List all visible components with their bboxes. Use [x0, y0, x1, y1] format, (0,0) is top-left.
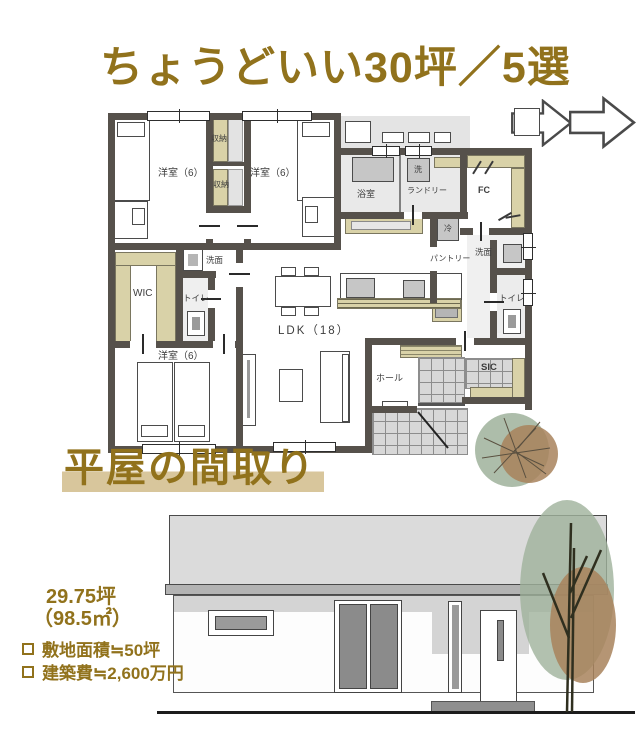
wic-shelf-right [156, 265, 176, 346]
wall [334, 148, 532, 155]
island-wood-panel [337, 298, 461, 309]
entrance-door-slit [497, 620, 504, 661]
window-symbol [405, 146, 432, 156]
washbasin [503, 244, 522, 263]
wall [208, 278, 215, 348]
room-label-pantry: パントリー [430, 255, 470, 263]
flyer-page: ちょうどいい30坪／5選 [0, 0, 637, 748]
room-label-washroom-right: 洗面 [475, 248, 492, 257]
spec-item-label: 敷地面積≒50坪 [42, 636, 160, 661]
wic-shelf-top [115, 252, 176, 266]
wall [108, 113, 115, 453]
wall [206, 162, 251, 166]
roof [169, 515, 607, 586]
page-title: ちょうどいい30坪／5選 [100, 47, 571, 90]
wall [462, 397, 532, 404]
wall [490, 268, 532, 275]
room-label-fridge: 冷 [444, 225, 452, 233]
dining-chair [281, 307, 296, 316]
roof-fascia [165, 584, 608, 595]
room-label-bedroom1: 洋室（6） [158, 169, 204, 179]
door-tick [464, 331, 466, 351]
wall [176, 271, 216, 278]
kitchen-sink [346, 278, 375, 298]
wall [365, 406, 417, 413]
slit-window-glass [452, 605, 459, 689]
spec-item: 敷地面積≒50坪 [22, 636, 160, 661]
wall [108, 243, 341, 250]
wall [430, 212, 437, 247]
toilet-bowl [508, 315, 516, 328]
tree-elevation-icon [505, 498, 637, 714]
coffee-table [279, 369, 303, 402]
dining-chair [281, 267, 296, 276]
checkbox-icon [22, 666, 34, 678]
door-tick [223, 334, 225, 354]
next-arrow-icon [569, 95, 636, 150]
room-label-bedroom3: 洋室（6） [158, 352, 204, 362]
bed-pillow [117, 122, 145, 137]
wall [460, 148, 467, 219]
door-tick [480, 222, 482, 241]
window-mullion [386, 144, 387, 158]
elevation-window [208, 610, 274, 636]
genkan-tiles [418, 357, 465, 403]
plan-caption: 平屋の間取り [62, 446, 324, 490]
spec-item-label: 建築費≒2,600万円 [42, 659, 184, 684]
door-tick [142, 334, 144, 354]
door-tick [199, 225, 220, 227]
dining-chair [304, 307, 319, 316]
water-heater [345, 121, 371, 143]
kitchen-back-counter-top [351, 221, 411, 230]
wall [430, 271, 437, 303]
desk-chair [305, 206, 318, 223]
sliding-door-panel [370, 604, 398, 689]
tree-topview-icon [474, 408, 560, 494]
wall [176, 243, 183, 348]
desk-chair [132, 208, 145, 225]
bathtub [352, 157, 394, 182]
floor-area-sqm: （98.5㎡） [33, 602, 132, 631]
deck-equipment [408, 132, 430, 143]
closet-bottom-floor [228, 169, 243, 206]
wall [365, 338, 372, 453]
deck-equipment [434, 132, 451, 143]
kitchen-stove [403, 280, 425, 298]
room-label-wic: WIC [133, 289, 152, 299]
closet-top-floor [228, 118, 243, 162]
window-symbol [242, 111, 312, 121]
sic-shelf-right [512, 358, 525, 398]
deck-equipment [382, 132, 404, 143]
door-opening [236, 263, 243, 287]
door-tick [412, 205, 414, 225]
slit-window [448, 601, 462, 693]
floor-plan: 洋室（6） 洋室（6） 洋室（6） 収納 収納 浴室 ランドリー 洗 FC 冷 … [108, 113, 532, 455]
room-label-toilet-left: トイレ [183, 294, 209, 303]
sliding-door-panel [339, 604, 367, 689]
porch-step [431, 701, 535, 713]
bath-divider [399, 155, 401, 212]
room-label-ldk: LDK（18） [278, 326, 350, 338]
wall [206, 206, 251, 213]
window-mullion [179, 109, 180, 123]
room-label-bedroom2: 洋室（6） [250, 169, 296, 179]
sliding-door-frame [334, 600, 402, 693]
window-symbol [147, 111, 210, 121]
door-tick [237, 225, 258, 227]
wall [334, 113, 341, 250]
room-label-hall: ホール [376, 374, 403, 383]
tv-screen [247, 360, 250, 418]
spec-item: 建築費≒2,600万円 [22, 659, 184, 684]
laundry-shelf [434, 157, 462, 168]
room-label-sic: SIC [481, 363, 497, 373]
wic-shelf-left [115, 265, 131, 346]
elevation-window-glass [215, 616, 267, 630]
washbasin-bowl [188, 254, 198, 266]
window-mullion [521, 247, 536, 248]
sofa-back [342, 354, 349, 422]
bed-pillow [141, 425, 168, 437]
room-label-closet-bottom: 収納 [213, 181, 229, 189]
genkan-step-edge [418, 403, 465, 406]
fc-shelf-right [511, 168, 525, 228]
room-label-bath: 浴室 [357, 190, 375, 199]
room-label-toilet-right: トイレ [499, 294, 525, 303]
window-symbol [372, 146, 400, 156]
entrance-door [480, 610, 517, 705]
bed-pillow [178, 425, 205, 437]
room-label-closet-top: 収納 [211, 135, 227, 143]
dining-table [275, 276, 331, 307]
room-label-laundry: ランドリー [407, 187, 447, 195]
plan-caption-text: 平屋の間取り [62, 446, 324, 492]
dining-chair [304, 267, 319, 276]
room-label-family-closet: FC [478, 186, 490, 195]
ground-line [157, 711, 635, 714]
window-mullion [419, 144, 420, 158]
door-tick [229, 273, 250, 275]
approach-slope-line [372, 408, 468, 455]
room-label-washroom-left: 洗面 [206, 256, 223, 265]
checkbox-icon [22, 643, 34, 655]
window-mullion [277, 109, 278, 123]
wall [460, 228, 532, 235]
toilet-bowl [192, 317, 200, 330]
bed-pillow [302, 122, 330, 137]
eave-shadow-entrance [432, 596, 529, 654]
eave-shadow [174, 596, 593, 612]
window-symbol [523, 233, 533, 260]
room-label-washer: 洗 [414, 166, 422, 174]
wall [365, 338, 532, 345]
house-wall [173, 595, 594, 693]
